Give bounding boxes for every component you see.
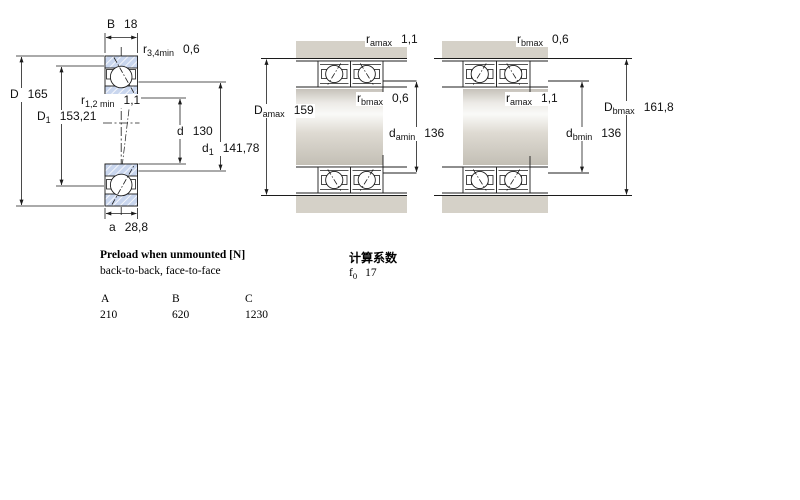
dim-label-Damax: Damax159 bbox=[253, 104, 315, 118]
preload-value-b: 620 bbox=[172, 309, 189, 321]
dim-label-D1: D1153,21 bbox=[36, 110, 97, 124]
dim-label-ramax-mid: ramax1,1 bbox=[365, 33, 419, 47]
dim-label-d: d130 bbox=[176, 125, 214, 139]
dim-label-rbmax-mid: rbmax0,6 bbox=[356, 92, 410, 106]
dim-label-damin: damin136 bbox=[388, 127, 445, 141]
dim-label-dbmin: dbmin136 bbox=[565, 127, 622, 141]
dim-label-ramax-right: ramax1,1 bbox=[505, 92, 559, 106]
bearing-datasheet-page: B18 r3,4min0,6 D165 r1,2 min1,1 D1153,21… bbox=[0, 0, 800, 500]
calculation-title: 计算系数 bbox=[349, 249, 397, 266]
preload-value-c: 1230 bbox=[245, 309, 268, 321]
preload-title: Preload when unmounted [N] bbox=[100, 249, 245, 261]
dim-label-r34: r3,4min0,6 bbox=[142, 43, 201, 57]
dim-label-r12: r1,2 min1,1 bbox=[80, 94, 141, 108]
preload-value-a: 210 bbox=[100, 309, 117, 321]
dim-label-D: D165 bbox=[9, 88, 49, 102]
preload-col-header-b: B bbox=[172, 293, 180, 305]
dim-D1 bbox=[56, 66, 104, 186]
preload-col-header-a: A bbox=[101, 293, 109, 305]
dim-label-rbmax-right: rbmax0,6 bbox=[516, 33, 570, 47]
dim-D bbox=[16, 56, 104, 206]
preload-col-header-c: C bbox=[245, 293, 253, 305]
dim-label-B: B18 bbox=[106, 18, 138, 32]
dim-label-d1: d1141,78 bbox=[201, 142, 260, 156]
calculation-factor-f0: f017 bbox=[349, 267, 377, 279]
dim-label-Dbmax: Dbmax161,8 bbox=[603, 101, 675, 115]
dim-label-a: a28,8 bbox=[108, 221, 149, 235]
preload-subtitle: back-to-back, face-to-face bbox=[100, 265, 221, 277]
